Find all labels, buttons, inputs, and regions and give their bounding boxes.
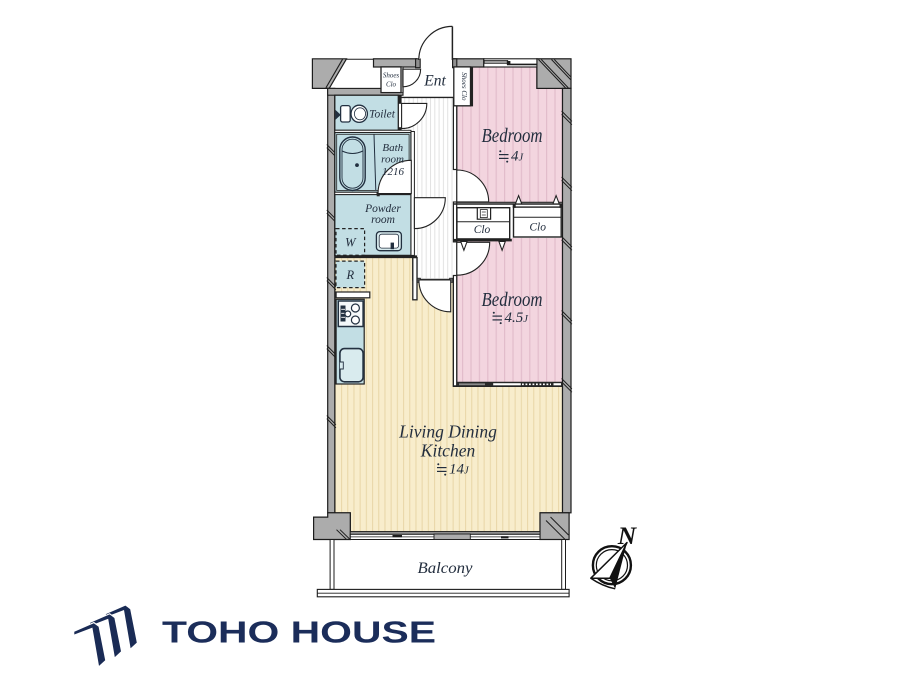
svg-text:Bedroom: Bedroom xyxy=(482,290,543,311)
svg-text:Clo: Clo xyxy=(474,224,491,236)
svg-text:N: N xyxy=(617,521,638,550)
svg-text:Shoes Clo: Shoes Clo xyxy=(460,72,468,101)
svg-text:Bedroom: Bedroom xyxy=(482,126,543,147)
svg-text:1216: 1216 xyxy=(382,166,405,178)
svg-text:room: room xyxy=(381,154,404,166)
svg-text:Toilet: Toilet xyxy=(369,108,396,120)
svg-text:W: W xyxy=(345,236,357,250)
svg-text:Kitchen: Kitchen xyxy=(420,441,476,461)
svg-text:TOHO HOUSE: TOHO HOUSE xyxy=(162,615,436,650)
svg-text:Ent: Ent xyxy=(423,73,446,90)
svg-text:Shoes: Shoes xyxy=(383,72,400,80)
svg-text:Living Dining: Living Dining xyxy=(398,422,497,442)
svg-text:Clo: Clo xyxy=(529,222,546,234)
svg-text:room: room xyxy=(371,214,395,226)
svg-text:R: R xyxy=(345,268,354,282)
svg-text:Balcony: Balcony xyxy=(418,559,474,577)
svg-text:Clo: Clo xyxy=(386,81,397,89)
svg-text:Bath: Bath xyxy=(382,142,403,154)
